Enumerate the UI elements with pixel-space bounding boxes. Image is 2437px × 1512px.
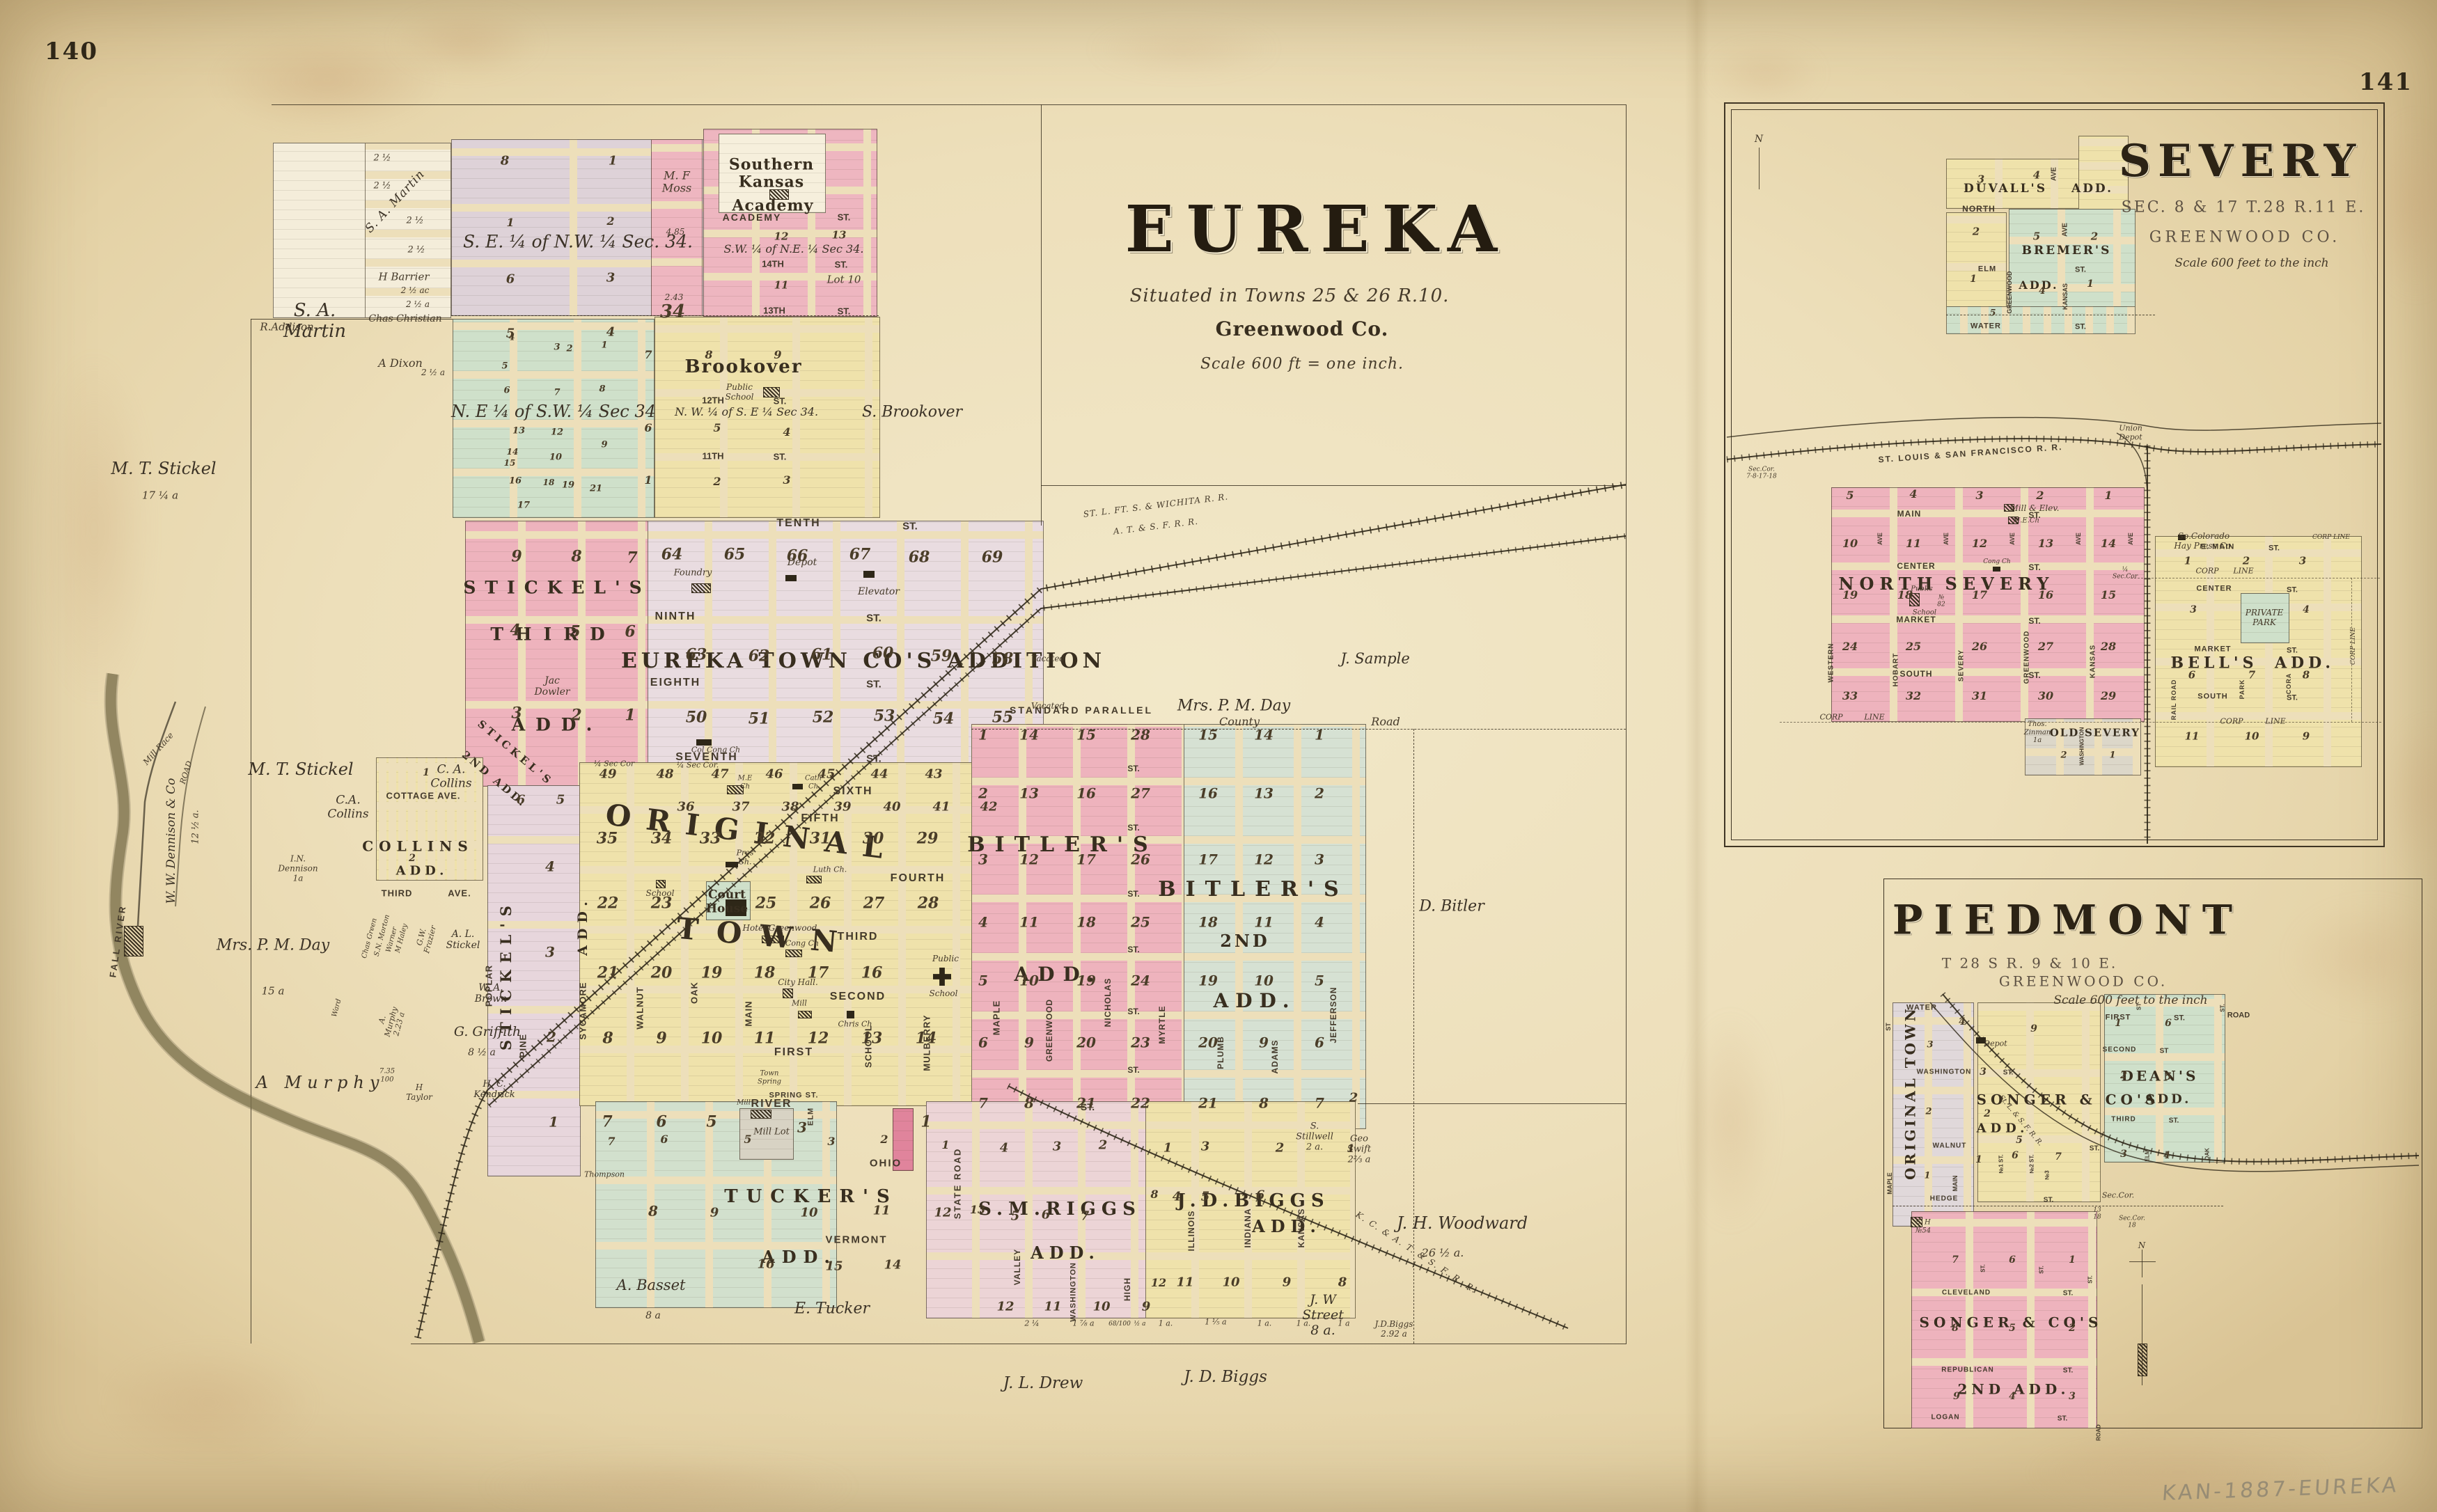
street-label: ST. bbox=[2058, 1415, 2067, 1423]
block-number: 16 bbox=[509, 477, 522, 487]
block-number: 10 bbox=[1019, 973, 1039, 989]
addition-label: ADD. bbox=[2071, 182, 2113, 196]
block-number: 3 bbox=[978, 852, 988, 868]
street-label: ST. bbox=[2063, 1289, 2073, 1298]
block-number: 2 bbox=[713, 475, 721, 488]
block-number: 9 bbox=[601, 441, 607, 451]
block-number: 48 bbox=[656, 768, 673, 782]
street-label: HIGH bbox=[1123, 1277, 1133, 1301]
block-number: 1 bbox=[2069, 1254, 2076, 1266]
solid-building-icon bbox=[785, 575, 797, 581]
map-note: Scale 600 ft = one inch. bbox=[1200, 355, 1404, 372]
street-label: THIRD bbox=[382, 889, 413, 899]
owner-label: J. H. Woodward bbox=[1397, 1214, 1528, 1234]
map-note: Luth Ch. bbox=[813, 866, 847, 875]
owner-label: A. Basset bbox=[617, 1277, 686, 1293]
block-number: 1 bbox=[1924, 1172, 1930, 1182]
block-number: 1 bbox=[625, 707, 635, 724]
street-label: ADAMS bbox=[1271, 1040, 1280, 1074]
owner-label: N. E ¼ of S.W. ¼ Sec 34 bbox=[451, 402, 656, 422]
owner-label: H. C. Kendrick bbox=[473, 1080, 515, 1101]
street-label: RAIL ROAD bbox=[2170, 679, 2177, 720]
street-label: HEDGE bbox=[1930, 1195, 1959, 1203]
owner-label: C. A. Collins bbox=[430, 763, 471, 790]
street-label: ST. bbox=[835, 260, 848, 271]
street-label: COTTAGE AVE. bbox=[386, 792, 460, 802]
block-number: 2 bbox=[2036, 489, 2044, 502]
block-number: 34 bbox=[660, 302, 685, 323]
block-number: 7 bbox=[1081, 1210, 1090, 1224]
block-number: 3 bbox=[2190, 604, 2197, 615]
block-number: 10 bbox=[2245, 730, 2259, 742]
map-note: H Barrier bbox=[378, 271, 429, 283]
block-number: 7 bbox=[1952, 1254, 1959, 1266]
map-note: CORP LINE bbox=[2312, 534, 2350, 541]
map-note: 1 a. bbox=[1296, 1320, 1311, 1329]
map-note: Thompson bbox=[584, 1171, 625, 1180]
street-label: SEVERY bbox=[1957, 649, 1966, 682]
block-number: 2 bbox=[571, 707, 581, 724]
block-number: 12 bbox=[934, 1206, 951, 1221]
block-number: 65 bbox=[724, 546, 746, 563]
block-number: 8 bbox=[705, 349, 712, 361]
street-label: WALNUT bbox=[636, 986, 646, 1030]
owner-label: A. L. Stickel bbox=[446, 929, 480, 951]
map-note: Thos. Zinman 1a bbox=[2024, 720, 2051, 745]
block-number: 8 bbox=[571, 548, 581, 565]
street-label: NORTH bbox=[1962, 205, 1996, 214]
addition-label: ORIGINAL TOWN bbox=[1903, 1006, 1919, 1180]
block-number: 3 bbox=[1315, 852, 1324, 868]
block-number: 6 bbox=[517, 794, 526, 808]
block-number: 11 bbox=[1254, 915, 1274, 931]
block-number: 4 bbox=[510, 622, 520, 639]
map-feature-path bbox=[1930, 1002, 2419, 1172]
street-label: ST. bbox=[902, 520, 918, 532]
addition-label: BITLER'S bbox=[1158, 878, 1348, 902]
block-number: 1 bbox=[978, 727, 988, 743]
block-number: 8 bbox=[599, 385, 605, 395]
street-label: TENTH bbox=[776, 517, 820, 530]
block-number: 7 bbox=[602, 1113, 612, 1131]
block-number: 38 bbox=[781, 801, 799, 815]
addition-label: BELL'S bbox=[2171, 654, 2258, 672]
block-number: 5 bbox=[556, 794, 565, 808]
addition-label: ADD. bbox=[1031, 1243, 1100, 1263]
street-label: ST. bbox=[2219, 1004, 2225, 1012]
street-label: SIXTH bbox=[833, 785, 872, 798]
owner-label: W. A. Brown bbox=[475, 982, 507, 1005]
block-number: 1 bbox=[941, 1139, 949, 1151]
block-number: 27 bbox=[1131, 786, 1150, 802]
block-number: 4 bbox=[2009, 1391, 2016, 1402]
block-number: 2 bbox=[2091, 230, 2098, 242]
street-label: №1 ST. bbox=[1998, 1154, 2004, 1173]
block-number: 2 bbox=[2060, 751, 2067, 762]
block-number: 1 bbox=[1975, 1154, 1982, 1165]
block-number: 2 bbox=[978, 786, 988, 802]
block-number: 11 bbox=[754, 1030, 776, 1047]
street-label: ST. bbox=[2075, 266, 2086, 275]
map-note: M. F Moss bbox=[662, 170, 691, 196]
addition-label: ADD. bbox=[512, 716, 603, 736]
map-note: LINE bbox=[2265, 718, 2285, 727]
block-number: 1 bbox=[1970, 274, 1977, 285]
block-number: 4 bbox=[2163, 1150, 2170, 1161]
block-number: 9 bbox=[2303, 730, 2310, 742]
map-note: S. H №54 bbox=[1915, 1219, 1931, 1235]
block-number: 8 bbox=[1952, 1323, 1959, 1334]
block-number: 4 bbox=[606, 326, 616, 340]
block-number: 2 bbox=[2120, 1070, 2127, 1081]
street-label: ST. bbox=[1127, 1066, 1139, 1076]
block-number: 28 bbox=[918, 895, 939, 912]
block-number: 1 bbox=[609, 155, 618, 169]
block-number: 16 bbox=[757, 1258, 774, 1273]
map-note: Scale 600 feet to the inch bbox=[2175, 257, 2328, 271]
block-number: 11 bbox=[2185, 730, 2200, 742]
map-note: City Hall. bbox=[778, 978, 818, 988]
solid-building-icon bbox=[863, 571, 875, 578]
block-number: 67 bbox=[849, 546, 871, 563]
map-note: 2 ¼ bbox=[1024, 1320, 1039, 1329]
hatched-building-icon bbox=[124, 926, 143, 956]
block-number: 11 bbox=[1019, 915, 1039, 931]
block-number: 3 bbox=[1201, 1140, 1210, 1155]
block-number: 9 bbox=[1259, 1035, 1269, 1051]
map-note: ¼ Sec.Cor bbox=[2113, 567, 2138, 581]
street-label: MAIN bbox=[1952, 1176, 1959, 1192]
map-note: 2 ½ a bbox=[406, 300, 430, 310]
hatched-building-icon bbox=[656, 880, 666, 888]
owner-label: A Murphy bbox=[256, 1073, 385, 1093]
block-number: 17 bbox=[1076, 852, 1096, 868]
block-number: 6 bbox=[644, 422, 652, 434]
block-number: 2 bbox=[1984, 1108, 1991, 1119]
street-label: ST. bbox=[2063, 1367, 2073, 1375]
map-note: 1 a. bbox=[1159, 1320, 1173, 1329]
page-number-left: 140 bbox=[45, 38, 98, 65]
block-number: 1 bbox=[601, 341, 607, 352]
block-number: 5 bbox=[713, 422, 721, 434]
map-title: SEVERY bbox=[2119, 136, 2362, 187]
map-note: Hotel Greenwood bbox=[743, 924, 817, 934]
block-number: 5 bbox=[501, 362, 508, 372]
addition-label: Brookover bbox=[684, 357, 802, 378]
block-number: 5 bbox=[2009, 1323, 2016, 1334]
block-number: 39 bbox=[833, 801, 851, 815]
street-label: ST bbox=[2160, 1047, 2169, 1055]
block-number: 19 bbox=[1076, 973, 1096, 989]
block-number: 19 bbox=[1842, 589, 1858, 601]
solid-building-icon bbox=[1993, 567, 2000, 572]
block-number: 9 bbox=[710, 1206, 719, 1221]
owner-label: N. W. ¼ of S. E ¼ Sec 34. bbox=[675, 406, 818, 418]
street-label: WATER bbox=[1970, 322, 2001, 331]
block-number: 64 bbox=[661, 546, 683, 563]
hatched-building-icon bbox=[798, 1011, 812, 1018]
block-number: 33 bbox=[1842, 690, 1858, 702]
street-label: ST. bbox=[2028, 617, 2040, 627]
street-label: WESTERN bbox=[1827, 643, 1835, 683]
block-number: 52 bbox=[813, 709, 834, 726]
map-note: 13 18 bbox=[2093, 1207, 2101, 1222]
street-label: KANSAS bbox=[2089, 645, 2097, 678]
block-number: 5 bbox=[1011, 1210, 1020, 1224]
block-number: 5 bbox=[570, 623, 580, 640]
block-number: 10 bbox=[701, 1030, 723, 1047]
block-number: 7 bbox=[2055, 1151, 2062, 1163]
block-number: 51 bbox=[749, 710, 770, 727]
block-number: 11 bbox=[774, 279, 789, 291]
street-label: CORA bbox=[2285, 673, 2292, 695]
street-label: STANDARD PARALLEL bbox=[1010, 704, 1153, 716]
street-label: RIVER bbox=[751, 1098, 792, 1110]
map-feature-path bbox=[175, 707, 205, 906]
street-label: ST. bbox=[1127, 945, 1139, 955]
block-number: 1 bbox=[2115, 1018, 2122, 1029]
map-note: 68/100 bbox=[1108, 1321, 1131, 1328]
solid-building-icon bbox=[847, 1011, 854, 1018]
block-number: 9 bbox=[511, 548, 522, 565]
street-label: SOUTH bbox=[2197, 693, 2228, 702]
block-number: 18 bbox=[1076, 915, 1096, 931]
street-label: ST. bbox=[2075, 323, 2086, 332]
street-label: ROAD bbox=[2227, 1011, 2250, 1021]
block-number: 12 bbox=[808, 1030, 829, 1047]
owner-label: J. D. Biggs bbox=[1184, 1368, 1267, 1386]
street-label: PARK bbox=[2239, 679, 2246, 700]
street-label: MYRTLE bbox=[1158, 1005, 1168, 1044]
block-number: 9 bbox=[1953, 1391, 1960, 1402]
block-number: 15 bbox=[2101, 589, 2116, 601]
block-number: 30 bbox=[863, 830, 884, 847]
street-label: ST. bbox=[2090, 1144, 2099, 1153]
atlas-sheet: 140 141 KAN-1887-EUREKA EUREKASituated i… bbox=[0, 0, 2437, 1512]
block-number: 6 bbox=[625, 623, 635, 640]
map-note: Jac Dowler bbox=[534, 675, 570, 698]
owner-label: S.W. ¼ of N.E. ¼ Sec 34. bbox=[724, 243, 864, 255]
owner-label: M. T. Stickel bbox=[111, 459, 216, 479]
block-number: 9 bbox=[1024, 1035, 1034, 1051]
street-label: MARKET bbox=[2194, 645, 2231, 654]
block-number: 6 bbox=[656, 1113, 666, 1131]
block-number: 4 bbox=[508, 333, 515, 344]
block-number: 3 bbox=[1980, 1066, 1987, 1078]
map-note: School bbox=[930, 989, 958, 999]
block-number: 8 bbox=[2303, 669, 2310, 681]
block-number: 2 bbox=[1276, 1142, 1285, 1156]
block-number: 3 bbox=[783, 474, 790, 487]
map-note: Road bbox=[1371, 716, 1400, 728]
street-label: SYCAMORE bbox=[579, 982, 589, 1039]
hatched-building-icon bbox=[783, 989, 793, 998]
street-label: ST. bbox=[866, 612, 881, 624]
block-number: 1 bbox=[644, 474, 652, 487]
street-label: ST. bbox=[866, 678, 881, 690]
block-number: 63 bbox=[686, 646, 707, 663]
block-number: 5 bbox=[1315, 973, 1324, 989]
street-label: KANSAS bbox=[2062, 283, 2069, 310]
map-note: PRIVATE PARK bbox=[2246, 608, 2283, 628]
block-number: 12 bbox=[1972, 537, 1987, 550]
block-number: 6 bbox=[2009, 1254, 2016, 1266]
block-number: 53 bbox=[874, 707, 895, 725]
street-label: MAPLE bbox=[1886, 1172, 1893, 1195]
block-number: 44 bbox=[870, 768, 888, 782]
block-number: 3 bbox=[1053, 1140, 1062, 1155]
map-note: LINE bbox=[2233, 567, 2253, 576]
addition-label: S.M.RIGGS bbox=[978, 1199, 1141, 1220]
block-number: 17 bbox=[517, 501, 530, 512]
addition-label: 2ND bbox=[1220, 931, 1269, 951]
map-note: 8 a bbox=[645, 1310, 661, 1321]
block-number: 6 bbox=[1256, 1189, 1265, 1204]
street-label: ST. bbox=[2287, 586, 2298, 595]
block-number: 23 bbox=[1131, 1035, 1150, 1051]
addition-label: Greenwood Co. bbox=[1216, 318, 1389, 340]
street-label: FIRST bbox=[774, 1046, 813, 1059]
map-feature-path bbox=[1727, 418, 2381, 437]
street-label: E. MAIN bbox=[2201, 543, 2235, 552]
block-number: 5 bbox=[1989, 309, 1996, 320]
street-label: №2 ST. bbox=[2028, 1154, 2035, 1173]
block-number: 27 bbox=[863, 895, 885, 912]
map-note: Depot bbox=[787, 557, 817, 568]
owner-label: J. L. Drew bbox=[1003, 1374, 1083, 1392]
map-note: 1 a. bbox=[1257, 1320, 1272, 1329]
block-number: 13 bbox=[832, 229, 847, 241]
block-number: 2 bbox=[566, 345, 572, 355]
map-note: M.E Ch bbox=[738, 775, 753, 791]
block-number: 15 bbox=[1198, 727, 1218, 743]
map-note: 4.85 bbox=[666, 228, 685, 237]
block-number: 14 bbox=[507, 448, 519, 457]
map-note: Cath Ch bbox=[805, 775, 822, 791]
map-subtitle: SEC. 8 & 17 T.28 R.11 E. bbox=[2122, 198, 2366, 216]
block-number: 47 bbox=[711, 768, 728, 782]
map-note: H Taylor bbox=[406, 1083, 432, 1103]
block-number: 19 bbox=[1198, 973, 1218, 989]
street-label: ST. bbox=[2268, 544, 2280, 553]
addition-label: ADD. bbox=[396, 865, 448, 879]
map-note: N bbox=[1755, 134, 1763, 145]
map-subtitle: GREENWOOD CO. bbox=[1999, 974, 2168, 990]
block-number: 1 bbox=[2109, 751, 2115, 762]
street-label: WASHINGTON bbox=[1917, 1068, 1972, 1076]
addition-label: ADD. bbox=[1213, 990, 1296, 1012]
block-number: 12 bbox=[774, 230, 789, 242]
block-number: 32 bbox=[754, 830, 776, 847]
map-note: CORP bbox=[2220, 718, 2243, 727]
block-number: 17 bbox=[1198, 852, 1218, 868]
block-number: 33 bbox=[700, 830, 721, 847]
block-number: 6 bbox=[506, 273, 515, 288]
block-number: 34 bbox=[651, 830, 673, 847]
street-label: ST. bbox=[1127, 890, 1139, 899]
block-number: 25 bbox=[755, 895, 777, 912]
block-number: 6 bbox=[2188, 669, 2195, 681]
block-number: 1 bbox=[423, 767, 430, 778]
block-number: 1 bbox=[2104, 489, 2112, 502]
map-note: Sec.Cor. 18 bbox=[2119, 1215, 2145, 1230]
block-number: 26 bbox=[810, 895, 831, 912]
block-number: 3 bbox=[2069, 1391, 2076, 1402]
block-number: 3 bbox=[606, 271, 616, 286]
block-number: 8 bbox=[1024, 1096, 1034, 1112]
street-label: 13TH bbox=[763, 306, 785, 317]
block-number: 11 bbox=[1906, 537, 1921, 550]
block-number: 13 bbox=[1254, 786, 1274, 802]
addition-label: BITLER'S bbox=[967, 833, 1157, 858]
block-number: 41 bbox=[932, 801, 950, 815]
street-label: VALLEY bbox=[1013, 1249, 1023, 1285]
street-label: ACADEMY bbox=[723, 212, 782, 223]
map-title: EUREKA bbox=[1125, 193, 1510, 267]
block-number: 2 bbox=[1315, 786, 1324, 802]
block-number: 3 bbox=[545, 945, 555, 961]
block-number: 3 bbox=[554, 343, 560, 354]
block-number: 9 bbox=[1142, 1300, 1151, 1315]
map-title: PIEDMONT bbox=[1893, 897, 2243, 944]
map-note: 8 ½ a bbox=[468, 1047, 496, 1058]
street-label: AVE bbox=[2061, 223, 2069, 237]
map-note: Chas Christian bbox=[368, 313, 441, 324]
block-number: 3 bbox=[1975, 489, 1983, 502]
map-note: N bbox=[2138, 1241, 2146, 1251]
street-label: REPUBLICAN bbox=[1941, 1366, 1994, 1374]
block-number: 17 bbox=[1972, 589, 1987, 601]
owner-label: C.A. Collins bbox=[327, 794, 368, 821]
block-number: 2 bbox=[2069, 1323, 2076, 1334]
street-label: ST. bbox=[838, 213, 851, 223]
street-label: ST. bbox=[1127, 764, 1139, 774]
block-number: 9 bbox=[656, 1030, 666, 1047]
addition-label: ADD. bbox=[1252, 1217, 1322, 1236]
street-label: MAIN bbox=[744, 1000, 755, 1026]
street-label: FOURTH bbox=[891, 872, 946, 885]
street-label: WALNUT bbox=[1933, 1142, 1967, 1150]
addition-label: DEAN'S bbox=[2122, 1069, 2199, 1085]
block-number: 6 bbox=[503, 386, 510, 397]
block-number: 68 bbox=[909, 549, 930, 566]
map-note: № 82 bbox=[1937, 594, 1945, 609]
block-number: 60 bbox=[872, 645, 894, 662]
street-label: CENTER bbox=[2196, 585, 2232, 594]
street-label: AVE bbox=[1943, 533, 1950, 545]
map-note: Union Depot bbox=[2119, 424, 2142, 441]
block-number: 43 bbox=[925, 768, 942, 782]
street-label: ST. bbox=[1980, 1264, 1986, 1273]
addition-label: DUVALL'S bbox=[1964, 182, 2047, 196]
block-number: 16 bbox=[861, 964, 883, 982]
addition-label: TUCKER'S bbox=[724, 1187, 898, 1208]
street-label: ELM bbox=[807, 1108, 816, 1126]
map-note: 2 ½ bbox=[373, 182, 391, 192]
block-number: 32 bbox=[1906, 690, 1921, 702]
map-note: 2 ½ bbox=[406, 216, 423, 227]
block-number: 27 bbox=[2038, 640, 2053, 653]
block-number: 9 bbox=[2030, 1023, 2037, 1034]
block-number: 2 bbox=[1925, 1108, 1931, 1118]
block-number: 14 bbox=[1254, 727, 1274, 743]
block-number: 4 bbox=[545, 859, 555, 875]
street-label: NICHOLAS bbox=[1104, 978, 1113, 1027]
street-label: NINTH bbox=[655, 611, 696, 623]
block-number: 18 bbox=[754, 964, 776, 982]
map-subtitle: T 28 S R. 9 & 10 E. bbox=[1942, 956, 2117, 972]
block-number: 16 bbox=[1198, 786, 1218, 802]
